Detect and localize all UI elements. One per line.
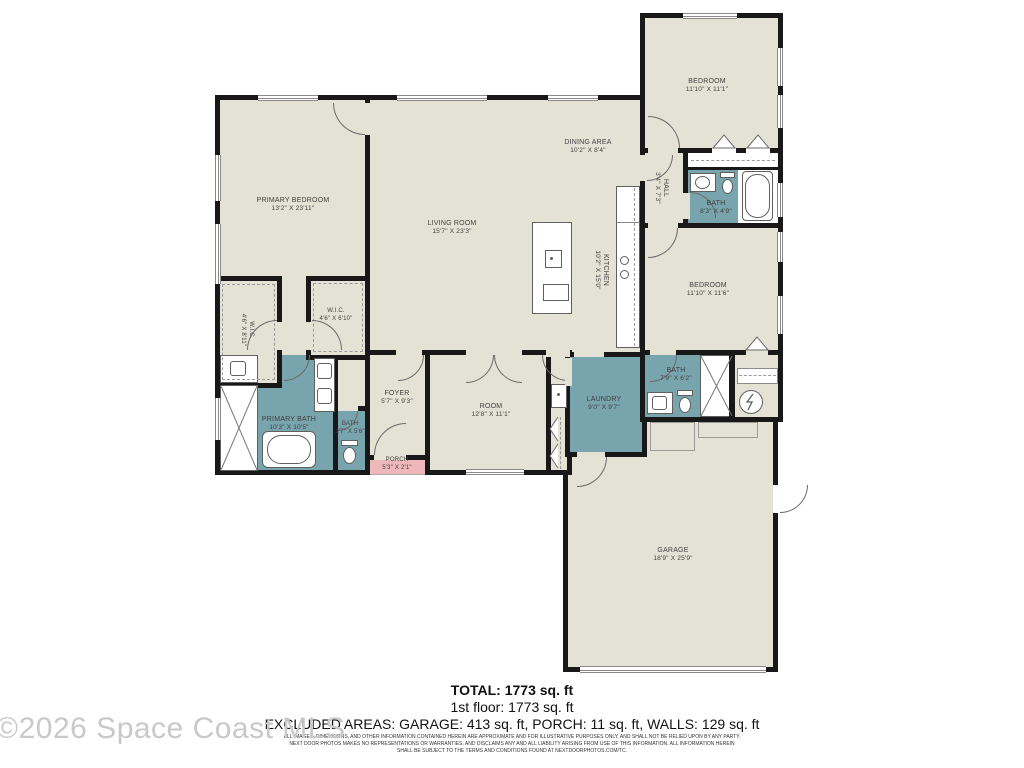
primary-shower-x-icon (220, 385, 258, 471)
closet-chevron-3-icon (745, 336, 769, 351)
room-label-foyer: FOYER 5'7" X 9'3" (381, 389, 413, 407)
kitchen-fridge-divider (617, 222, 639, 223)
room-dims: 8'3" X 4'9" (700, 208, 732, 217)
room-name: PRIMARY BATH (262, 415, 316, 424)
room-label-bath-hall: BATH 8'3" X 4'9" (700, 199, 732, 217)
window-bedroom-right-2 (777, 296, 783, 334)
room-dims: 7'9" X 6'2" (660, 375, 692, 384)
room-dims: 3'4" X 7'3" (652, 172, 661, 204)
stove-burner-2-icon (620, 270, 629, 279)
garage-door (580, 666, 766, 673)
opening-laundry (565, 358, 572, 386)
room-label-laundry: LAUNDRY 9'0" X 9'7" (587, 395, 622, 413)
bath-small-toilet-tank (341, 440, 358, 446)
room-dims: 12'8" X 11'1" (472, 411, 511, 420)
doorway-bath-small (338, 404, 358, 411)
room-label-room: ROOM 12'8" X 11'1" (472, 402, 511, 420)
room-name: W.I.C. (320, 307, 353, 315)
room-dims: 5'3" X 2'1" (382, 464, 411, 472)
disclaimer-line-3: SHALL BE SUBJECT TO THE TERMS AND CONDIT… (0, 748, 1024, 754)
primary-bathtub-basin (267, 435, 311, 464)
stove-burner-1-icon (620, 256, 629, 265)
living-dining-kitchen-shell (365, 95, 648, 357)
room-dims: 13'2" X 23'11" (257, 205, 330, 214)
room-dims: 10'3" X 10'5" (262, 424, 316, 433)
corridor-bifold-chevron-1-icon (549, 416, 559, 442)
room-label-hall: HALL 3'4" X 7'3" (652, 172, 670, 204)
room-dims: 4'6" X 6'10" (320, 315, 353, 323)
window-bedroom-top-right-1 (777, 48, 783, 86)
room-name: LAUNDRY (587, 395, 622, 404)
room-label-primary-bath: PRIMARY BATH 10'3" X 10'5" (262, 415, 316, 433)
doorway-wic-left (277, 322, 284, 350)
room-name: HALL (661, 172, 670, 204)
kitchen-counter (616, 186, 640, 348)
bath-rear-shower-x-icon (700, 355, 733, 417)
room-name: GARAGE (653, 546, 692, 555)
room-label-dining-area: DINING AREA 10'2" X 8'4" (564, 138, 611, 156)
window-living-top-slider (397, 95, 487, 101)
room-dims: 2'7" X 5'6" (335, 428, 364, 436)
window-bedroom-right-1 (777, 232, 783, 262)
window-bedroom-top-right-2 (777, 95, 783, 128)
window-bath-hall-right (777, 183, 783, 217)
window-primary-bedroom-top (258, 95, 318, 101)
laundry-tub-faucet-dot (557, 393, 560, 396)
room-name: BATH (335, 420, 364, 428)
room-dims: 9'0" X 9'7" (587, 404, 622, 413)
doorway-bath-hall (683, 193, 690, 219)
room-label-kitchen: KITCHEN 10'2" X 15'0" (592, 250, 610, 289)
bath-rear-toilet-bowl (679, 397, 691, 413)
room-name: BATH (660, 366, 692, 375)
bath-rear-toilet-tank (677, 390, 693, 396)
window-dining-top (548, 95, 598, 101)
room-dims: 18'9" X 25'9" (653, 555, 692, 564)
opening-living-corridor (574, 350, 604, 357)
room-dims: 10'2" X 8'4" (564, 147, 611, 156)
room-label-wic-left: W.I.C. 4'6" X 8'11" (239, 314, 255, 347)
doorway-garage-side (773, 485, 780, 513)
doorway-hall (640, 155, 647, 181)
bath-small-toilet-bowl (343, 447, 356, 464)
closet-chevron-2-icon (746, 134, 770, 149)
total-area-text: TOTAL: 1773 sq. ft (0, 682, 1024, 698)
room-dims: 11'10" X 11'6" (687, 290, 729, 299)
bath-hall-sink-icon (695, 176, 710, 189)
closet-chevron-1-icon (712, 134, 736, 149)
garage-step-1 (650, 422, 695, 451)
opening-room-closet (466, 348, 522, 355)
utility-closet-shelf (737, 368, 778, 384)
bath-hall-tub-basin (745, 174, 770, 218)
bath-hall-toilet-tank (720, 172, 735, 178)
doorway-wic-right (305, 322, 312, 350)
room-label-wic-right: W.I.C. 4'6" X 6'10" (320, 307, 353, 323)
window-room-bottom (466, 469, 524, 475)
opening-bedroom-right-closet (746, 350, 768, 357)
room-name: ROOM (472, 402, 511, 411)
room-dims: 10'2" X 15'0" (592, 250, 601, 289)
room-label-living-room: LIVING ROOM 15'7" X 23'3" (428, 219, 477, 237)
window-primary-bedroom-left-2 (215, 224, 221, 284)
floor-plan-page: PRIMARY BEDROOM 13'2" X 23'11" LIVING RO… (0, 0, 1024, 768)
room-name: PRIMARY BEDROOM (257, 196, 330, 205)
kitchen-counter-edge-dashed (634, 188, 635, 346)
doorway-bedroom-right (648, 221, 678, 228)
room-dims: 4'6" X 8'11" (239, 314, 247, 347)
room-name: PORCH (382, 456, 411, 464)
window-primary-bedroom-left-1 (215, 155, 221, 201)
bath-hall-toilet-bowl (722, 179, 733, 194)
mls-watermark: ©2026 Space Coast MLS (0, 712, 345, 746)
primary-vanity-sink2-icon (317, 388, 332, 404)
garage-step-2 (698, 422, 758, 438)
doorway-primary-bath (282, 348, 306, 355)
room-name: DINING AREA (564, 138, 611, 147)
island-dishwasher (543, 284, 569, 301)
corridor-closet-shelf-dashed (560, 417, 567, 469)
room-name: BEDROOM (686, 77, 728, 86)
window-bedroom-top-north (683, 13, 737, 19)
room-dims: 5'7" X 9'3" (381, 398, 413, 407)
doorway-bath-rear (650, 348, 676, 355)
utility-closet-shelf-dashed (739, 375, 776, 376)
primary-vanity-sink1-icon (317, 363, 332, 379)
bath-rear-sink-icon (652, 396, 667, 410)
laundry-tub (551, 384, 567, 408)
room-label-bath-rear: BATH 7'9" X 6'2" (660, 366, 692, 384)
room-label-bedroom-top: BEDROOM 11'10" X 11'1" (686, 77, 728, 95)
room-dims: 15'7" X 23'3" (428, 228, 477, 237)
island-faucet-dot (550, 257, 553, 260)
room-label-bath-small: BATH 2'7" X 5'6" (335, 420, 364, 436)
room-label-garage: GARAGE 18'9" X 25'9" (653, 546, 692, 564)
door-arc-garage-side-icon (780, 485, 808, 513)
corridor-bifold-chevron-2-icon (549, 443, 559, 469)
room-label-primary-bedroom: PRIMARY BEDROOM 13'2" X 23'11" (257, 196, 330, 214)
island-sink-icon (545, 250, 562, 268)
room-name: KITCHEN (601, 250, 610, 289)
room-name: LIVING ROOM (428, 219, 477, 228)
room-name: BEDROOM (687, 281, 729, 290)
water-heater-bolt-icon (739, 390, 763, 414)
room-name: BATH (700, 199, 732, 208)
room-name: W.I.C. (247, 314, 255, 347)
room-name: FOYER (381, 389, 413, 398)
bath-hall-closet-shelf-dashed (691, 160, 775, 161)
room-dims: 11'10" X 11'1" (686, 86, 728, 95)
room-label-porch: PORCH 5'3" X 2'1" (382, 456, 411, 472)
bath-hall-closet (688, 153, 778, 170)
room-label-bedroom-right: BEDROOM 11'10" X 11'6" (687, 281, 729, 299)
